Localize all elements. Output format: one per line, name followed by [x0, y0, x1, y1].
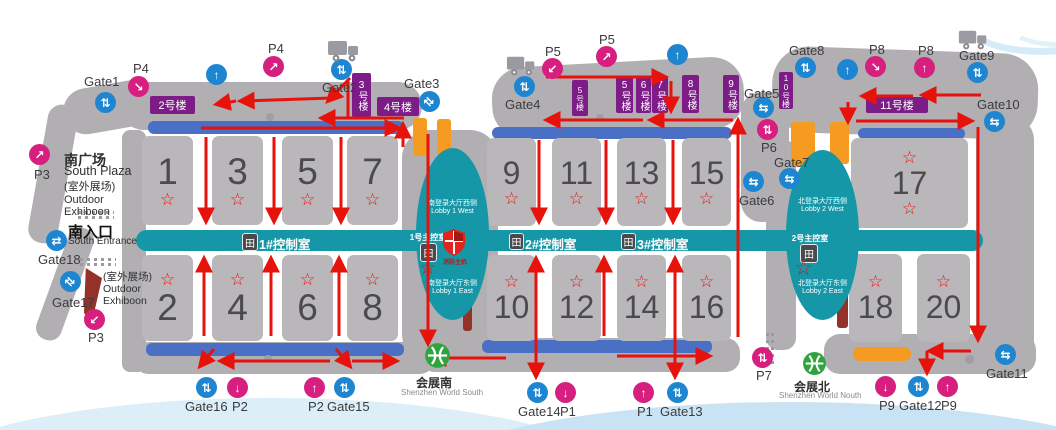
updown-arrows-icon: ⇅ — [757, 352, 767, 364]
updown-arrows-icon: ⇅ — [201, 382, 211, 394]
p9-label: P9 — [941, 398, 957, 413]
gate15-label: Gate15 — [327, 399, 370, 414]
up-arrow-icon: ↑ — [312, 382, 318, 394]
gate17-label: Gate17 — [52, 295, 95, 310]
p6-label: P6 — [761, 140, 777, 155]
gate4-label: Gate4 — [505, 97, 540, 112]
gate12-marker: ⇅ — [908, 376, 929, 397]
leftright-arrows-icon: ⇆ — [989, 116, 999, 128]
gate10-marker: ⇆ — [984, 111, 1005, 132]
updown-arrows-icon: ⇅ — [339, 382, 349, 394]
p8-marker: ↑ — [914, 57, 935, 78]
p5-marker: ↗ — [596, 46, 617, 67]
p9-marker: ↓ — [875, 376, 896, 397]
gate15-marker: ⇅ — [334, 377, 355, 398]
direction-up-marker: ↑ — [667, 44, 688, 65]
sw-arrow-icon: ↙ — [547, 63, 557, 75]
truck-icon — [506, 53, 537, 77]
outdoor-exhibition-label: (室外展场)OutdoorExhiboon — [64, 181, 144, 219]
gate7-label: Gate7 — [774, 155, 809, 170]
sw-arrow-icon: ↙ — [89, 314, 99, 326]
p3-label: P3 — [88, 330, 104, 345]
gate12-label: Gate12 — [899, 398, 942, 413]
gate7-marker: ⇆ — [779, 168, 800, 189]
up-arrow-icon: ↑ — [214, 69, 220, 81]
p5-marker: ↙ — [542, 58, 563, 79]
p8-label: P8 — [918, 43, 934, 58]
se-arrow-icon: ↘ — [133, 81, 143, 93]
p1-label: P1 — [560, 404, 576, 419]
direction-up-marker: ↑ — [837, 59, 858, 80]
gate1-label: Gate1 — [84, 74, 119, 89]
gate17-marker: ⇅ — [60, 271, 81, 292]
gate11-marker: ⇆ — [995, 344, 1016, 365]
gate6-label: Gate6 — [739, 193, 774, 208]
gate4-marker: ⇅ — [514, 76, 535, 97]
gate14-marker: ⇅ — [527, 382, 548, 403]
updown-arrows-icon: ⇅ — [672, 387, 682, 399]
ne-arrow-icon: ↗ — [268, 61, 278, 73]
up-arrow-icon: ↑ — [845, 64, 851, 76]
gate16-marker: ⇅ — [196, 377, 217, 398]
p7-label: P7 — [756, 368, 772, 383]
updown-arrows-icon: ⇅ — [336, 64, 346, 76]
outdoor-exhibition-label: (室外展场)OutdoorExhiboon — [103, 271, 173, 307]
gate1-marker: ⇅ — [95, 92, 116, 113]
p2-marker: ↑ — [304, 377, 325, 398]
diagonal-arrows-icon: ⇅ — [63, 274, 79, 290]
metro-north-en: Shenzhen World Nouth — [779, 391, 862, 400]
gate13-label: Gate13 — [660, 404, 703, 419]
south-plaza-en: South Plaza — [64, 164, 131, 178]
up-arrow-icon: ↑ — [641, 387, 647, 399]
p2-label: P2 — [308, 399, 324, 414]
p9-label: P9 — [879, 398, 895, 413]
p1-marker: ↑ — [633, 382, 654, 403]
truck-icon — [327, 37, 361, 63]
metro-logo-icon — [424, 342, 451, 369]
leftright-arrows-icon: ⇆ — [1000, 349, 1010, 361]
gate13-marker: ⇅ — [667, 382, 688, 403]
gate16-label: Gate16 — [185, 399, 228, 414]
down-arrow-icon: ↓ — [563, 387, 569, 399]
p8-marker: ↘ — [865, 56, 886, 77]
p5-label: P5 — [599, 32, 615, 47]
gate10-label: Gate10 — [977, 97, 1020, 112]
p3-label: P3 — [34, 167, 50, 182]
gate14-label: Gate14 — [518, 404, 561, 419]
updown-arrows-icon: ⇅ — [913, 381, 923, 393]
p2-label: P2 — [232, 399, 248, 414]
p9-marker: ↑ — [937, 376, 958, 397]
swap-arrows-icon: ⇄ — [51, 235, 61, 247]
metro-logo-icon — [802, 351, 827, 376]
gate2-label: Gate2 — [322, 80, 357, 95]
p4-marker: ↘ — [128, 76, 149, 97]
fire-shield-icon — [443, 229, 465, 256]
gate8-marker: ⇅ — [795, 57, 816, 78]
ne-arrow-icon: ↗ — [601, 51, 611, 63]
direction-up-marker: ↑ — [206, 64, 227, 85]
leftright-arrows-icon: ⇆ — [758, 102, 768, 114]
gate18-label: Gate18 — [38, 252, 81, 267]
p5-label: P5 — [545, 44, 561, 59]
up-arrow-icon: ↑ — [675, 49, 681, 61]
p6-marker: ⇅ — [757, 119, 778, 140]
p1-label: P1 — [637, 404, 653, 419]
south-entrance-en: South Entrance — [68, 236, 137, 247]
updown-arrows-icon: ⇅ — [519, 81, 529, 93]
updown-arrows-icon: ⇅ — [100, 97, 110, 109]
down-arrow-icon: ↓ — [235, 382, 241, 394]
gate3-marker: ⇅ — [419, 91, 440, 112]
p7-marker: ⇅ — [752, 347, 773, 368]
gate5-label: Gate5 — [744, 86, 779, 101]
p1-marker: ↓ — [555, 382, 576, 403]
p4-label: P4 — [268, 41, 284, 56]
se-arrow-icon: ↘ — [870, 61, 880, 73]
gate6-marker: ⇆ — [743, 171, 764, 192]
ne-arrow-icon: ↗ — [34, 149, 44, 161]
gate9-marker: ⇅ — [967, 62, 988, 83]
down-arrow-icon: ↓ — [883, 381, 889, 393]
p8-label: P8 — [869, 42, 885, 57]
updown-arrows-icon: ⇅ — [972, 67, 982, 79]
updown-arrows-icon: ⇅ — [532, 387, 542, 399]
updown-arrows-icon: ⇅ — [800, 62, 810, 74]
p3-marker: ↗ — [29, 144, 50, 165]
p4-marker: ↗ — [263, 56, 284, 77]
gate18-marker: ⇄ — [46, 230, 67, 251]
p4-label: P4 — [133, 61, 149, 76]
truck-icon — [958, 27, 989, 51]
diagonal-arrows-icon: ⇅ — [422, 94, 438, 110]
gate3-label: Gate3 — [404, 76, 439, 91]
leftright-arrows-icon: ⇆ — [748, 176, 758, 188]
venue-map: 1☆ 3☆ 5☆ 7☆ ☆2 ☆4 ☆6 ☆8 9☆ 11☆ 13☆ 15☆ ☆… — [0, 0, 1056, 430]
up-arrow-icon: ↑ — [945, 381, 951, 393]
updown-arrows-icon: ⇅ — [762, 124, 772, 136]
gate8-label: Gate8 — [789, 43, 824, 58]
gate11-label: Gate11 — [986, 366, 1028, 381]
up-arrow-icon: ↑ — [922, 62, 928, 74]
p3-marker: ↙ — [84, 309, 105, 330]
leftright-arrows-icon: ⇆ — [784, 173, 794, 185]
metro-south-en: Shenzhen World South — [401, 388, 483, 397]
p2-marker: ↓ — [227, 377, 248, 398]
